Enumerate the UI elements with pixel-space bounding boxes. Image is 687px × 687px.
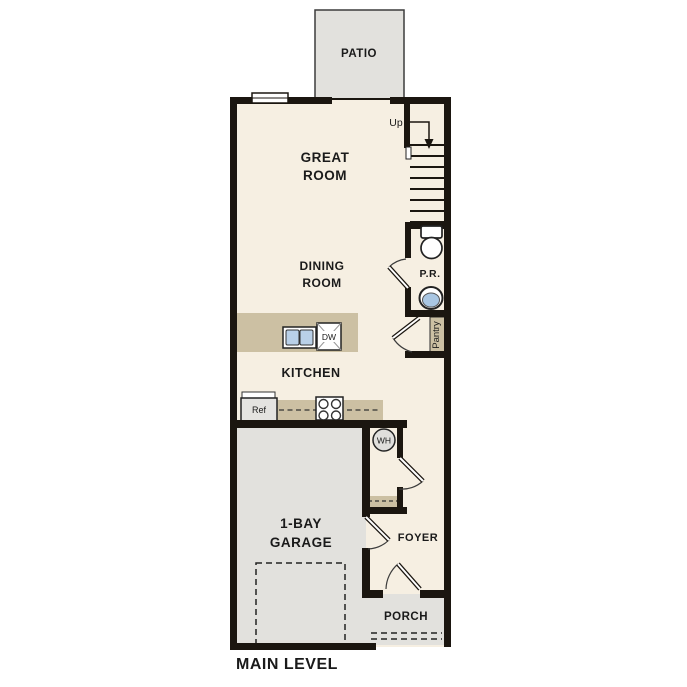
dishwasher-label: DW [322,332,336,342]
floor-plan-svg: DW Ref Pantry [0,0,687,687]
water-heater: WH [373,429,395,451]
stairs-up-label: Up [389,117,403,129]
wall-porch-north-right [420,590,451,598]
foyer-label: FOYER [398,532,438,544]
kitchen-label: KITCHEN [281,366,340,380]
kitchen-sink [283,327,316,348]
wall-top-right [390,97,451,104]
wall-closet-east-upper [397,428,403,458]
wall-closet-east-lower [397,487,403,509]
dining-room-label-line1: DINING [300,259,345,273]
stove [316,397,343,420]
wall-pr-west-upper [405,229,411,258]
wall-porch-north-left [362,590,383,598]
dishwasher: DW [317,323,341,350]
stair-start-marker [406,147,411,159]
wall-garage-north [230,420,407,428]
dining-room-label-line2: ROOM [302,276,341,290]
window [252,93,288,103]
pantry-label: Pantry [431,321,442,349]
wall-closet-south [362,507,407,514]
bathroom-sink-fixture [420,287,443,309]
floor-plan: DW Ref Pantry [0,0,687,687]
garage-label-line1: 1-BAY [280,516,322,531]
wall-left [230,97,237,650]
great-room-label-line1: GREAT [301,150,350,165]
wall-right [444,97,451,647]
garage-label-line2: GARAGE [270,535,332,550]
wall-garage-east-upper [362,428,370,517]
wall-stair-west [404,104,410,148]
water-heater-label: WH [377,436,391,446]
wall-pr-south [405,310,444,317]
refrigerator: Ref [241,392,277,421]
plan-title: MAIN LEVEL [236,656,338,673]
powder-room-label: P.R. [419,268,440,280]
wall-bottom-garage [230,643,376,650]
porch-label: PORCH [384,611,428,623]
patio-label: PATIO [341,48,377,60]
closet-shelf [367,496,398,507]
patio-door-threshold [332,98,390,100]
toilet-fixture [421,226,442,259]
refrigerator-label: Ref [252,405,267,415]
great-room-label-line2: ROOM [303,168,347,183]
